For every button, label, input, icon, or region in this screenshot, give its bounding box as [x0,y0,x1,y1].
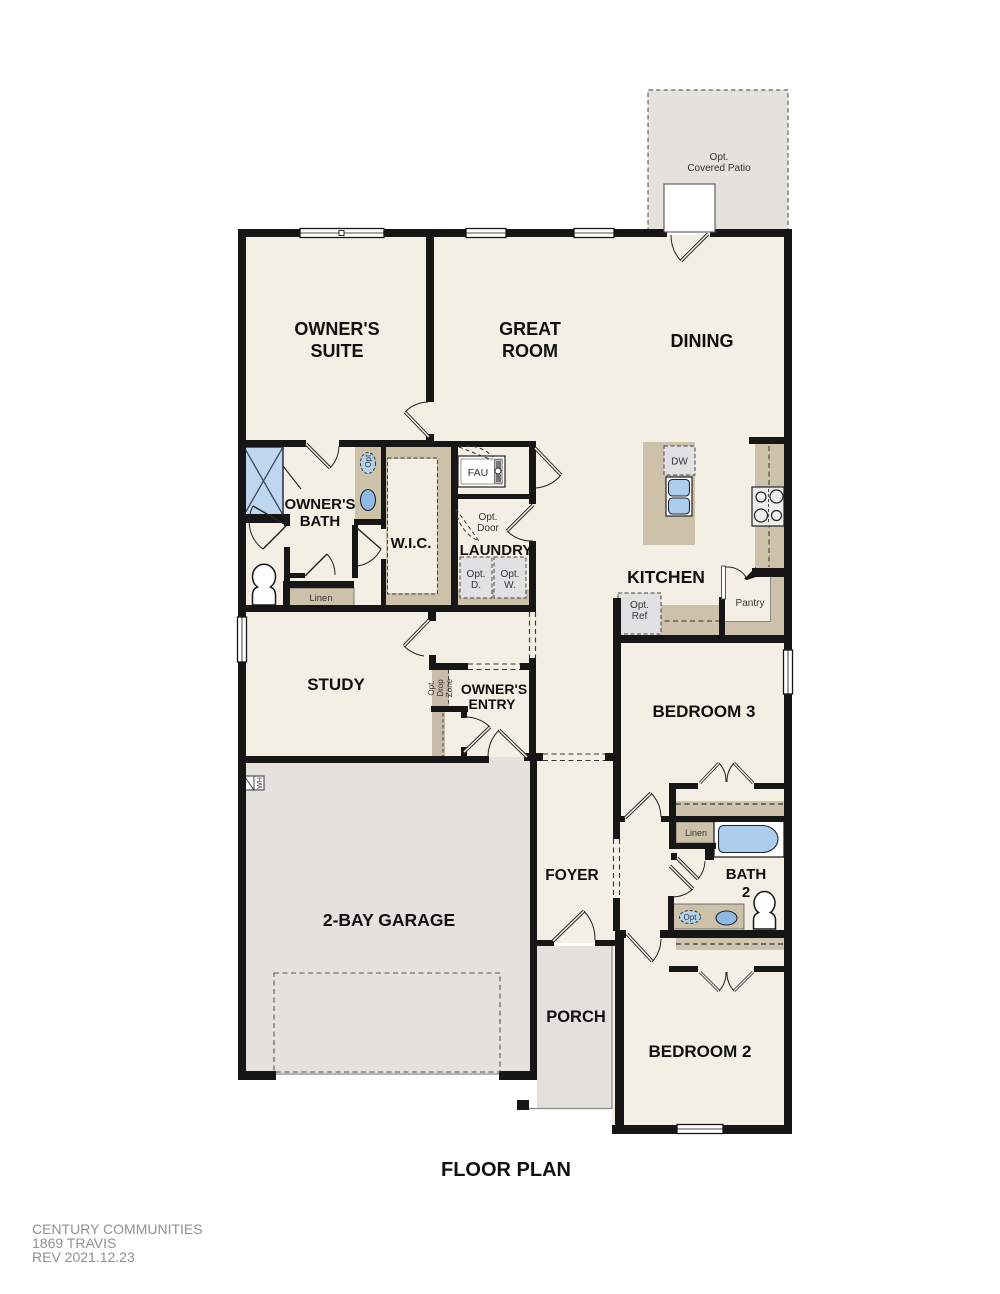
svg-text:BATH: BATH [300,513,341,530]
svg-text:WH: WH [257,777,264,789]
svg-text:BEDROOM 2: BEDROOM 2 [649,1042,752,1061]
svg-text:Opt.: Opt. [467,569,486,580]
svg-text:D.: D. [471,580,481,591]
svg-text:W.I.C.: W.I.C. [391,535,432,552]
svg-text:REV 2021.12.23: REV 2021.12.23 [32,1249,135,1265]
svg-text:SUITE: SUITE [310,341,363,361]
svg-text:Opt.: Opt. [501,569,520,580]
svg-text:Drop: Drop [436,679,445,697]
svg-text:Opt.: Opt. [364,452,373,467]
svg-text:Zone: Zone [445,678,454,697]
svg-text:BEDROOM 3: BEDROOM 3 [653,702,756,721]
svg-text:GREAT: GREAT [499,319,561,339]
svg-text:DW: DW [671,457,688,468]
svg-text:OWNER'S: OWNER'S [284,496,355,513]
svg-text:Opt.: Opt. [479,512,498,523]
svg-text:Pantry: Pantry [736,598,765,609]
svg-text:FOYER: FOYER [545,867,598,884]
svg-text:Opt.: Opt. [630,600,649,611]
svg-text:LAUNDRY: LAUNDRY [460,542,533,559]
svg-text:Linen: Linen [685,828,707,838]
svg-text:2-BAY GARAGE: 2-BAY GARAGE [323,910,455,930]
svg-text:OWNER'S: OWNER'S [461,681,527,697]
svg-text:Opt: Opt [684,913,698,922]
svg-text:FAU: FAU [468,467,488,479]
svg-text:OWNER'S: OWNER'S [294,319,379,339]
svg-text:Covered Patio: Covered Patio [687,163,751,174]
svg-text:KITCHEN: KITCHEN [627,567,705,587]
svg-text:Ref: Ref [632,611,648,622]
svg-text:DINING: DINING [671,331,734,351]
svg-text:Opt.: Opt. [427,680,436,695]
svg-text:Door: Door [477,523,499,534]
svg-text:Opt.: Opt. [710,152,729,163]
svg-text:W.: W. [504,580,516,591]
svg-text:PORCH: PORCH [546,1008,606,1026]
svg-text:STUDY: STUDY [307,675,365,694]
svg-text:ROOM: ROOM [502,341,558,361]
svg-text:ENTRY: ENTRY [469,696,517,712]
svg-text:2: 2 [742,884,750,901]
svg-text:Linen: Linen [309,593,332,604]
svg-text:FLOOR PLAN: FLOOR PLAN [441,1159,571,1181]
svg-text:BATH: BATH [726,866,767,883]
